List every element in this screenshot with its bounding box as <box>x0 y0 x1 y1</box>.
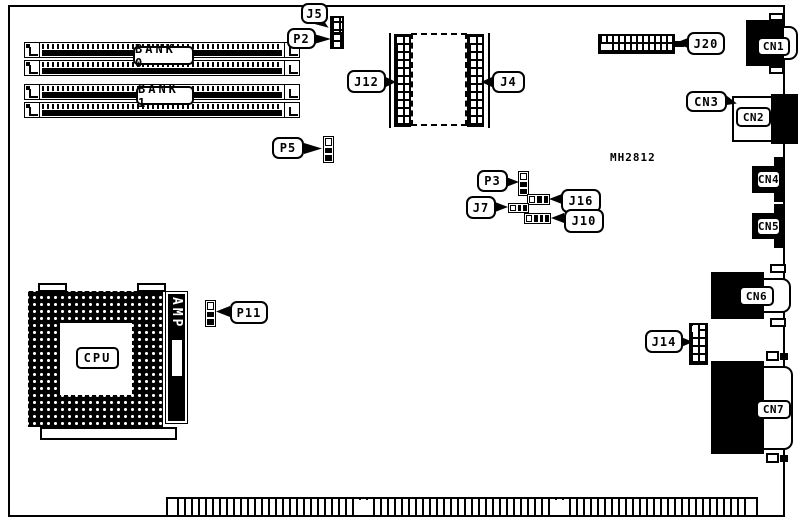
cn6-mount-tab <box>770 264 786 273</box>
callout-p5: P5 <box>272 137 304 159</box>
cn1-label: CN1 <box>757 37 790 56</box>
cn2-shell <box>771 94 798 144</box>
cn7-nub <box>780 455 788 462</box>
cn7-nub <box>780 353 788 360</box>
motherboard-diagram: BANK 0 BANK 1 J5 P2 J12 J4 J20 CN1 CN3 C… <box>0 0 800 521</box>
callout-j14: J14 <box>645 330 683 353</box>
chip-socket-outline <box>411 33 467 126</box>
cn2-label: CN2 <box>736 107 771 127</box>
header-j4 <box>467 34 484 127</box>
callout-j5: J5 <box>301 3 328 24</box>
cn6-label: CN6 <box>739 286 774 306</box>
callout-j7: J7 <box>466 196 496 219</box>
jumper-p3 <box>518 171 529 196</box>
header-j4-pin1 <box>470 37 476 43</box>
edge-connector-notch <box>552 500 566 515</box>
header-j20 <box>598 34 675 54</box>
callout-j12: J12 <box>347 70 386 93</box>
cn4-nub <box>774 192 783 202</box>
callout-p3: P3 <box>477 170 508 192</box>
header-j20-pin1 <box>601 44 609 50</box>
lever-slot <box>172 340 182 376</box>
amp-brand-text: AMP <box>169 297 184 329</box>
simm-clip <box>25 43 40 57</box>
cn4-label: CN4 <box>756 170 781 189</box>
cn7-mount-tab <box>766 351 779 361</box>
jumper-p5 <box>323 136 334 163</box>
bank0-label: BANK 0 <box>133 46 194 65</box>
callout-j4: J4 <box>492 71 525 93</box>
cn7-mount-tab <box>766 453 779 463</box>
header-p2-block <box>330 32 344 49</box>
cpu-socket-tab <box>137 283 166 292</box>
cpu-retention-bar <box>40 427 177 440</box>
callout-p11: P11 <box>230 301 268 324</box>
jumper-p11 <box>205 300 216 327</box>
cpu-socket-lever: AMP <box>165 291 188 424</box>
header-j12-pin1 <box>397 37 403 43</box>
cpu-label: CPU <box>76 347 119 369</box>
edge-connector <box>166 497 758 515</box>
cn5-label: CN5 <box>756 217 781 236</box>
cn7-label: CN7 <box>756 400 791 419</box>
callout-j20: J20 <box>687 32 725 55</box>
bank1-label: BANK 1 <box>136 86 194 105</box>
jumper-j7 <box>508 203 529 213</box>
callout-cn3: CN3 <box>686 91 727 112</box>
header-j14-pin1 <box>692 326 698 332</box>
cn1-mount-tab <box>769 66 784 74</box>
callout-p2: P2 <box>287 28 316 49</box>
cpu-socket-tab <box>38 283 67 292</box>
callout-j10: J10 <box>564 209 604 233</box>
jumper-j16 <box>527 194 550 205</box>
jumper-j10 <box>524 213 551 224</box>
cn5-nub <box>774 238 783 248</box>
chip-text: MH2812 <box>610 151 656 164</box>
header-j12 <box>394 34 411 127</box>
edge-connector-notch <box>359 500 373 515</box>
cn6-mount-tab <box>770 318 786 327</box>
